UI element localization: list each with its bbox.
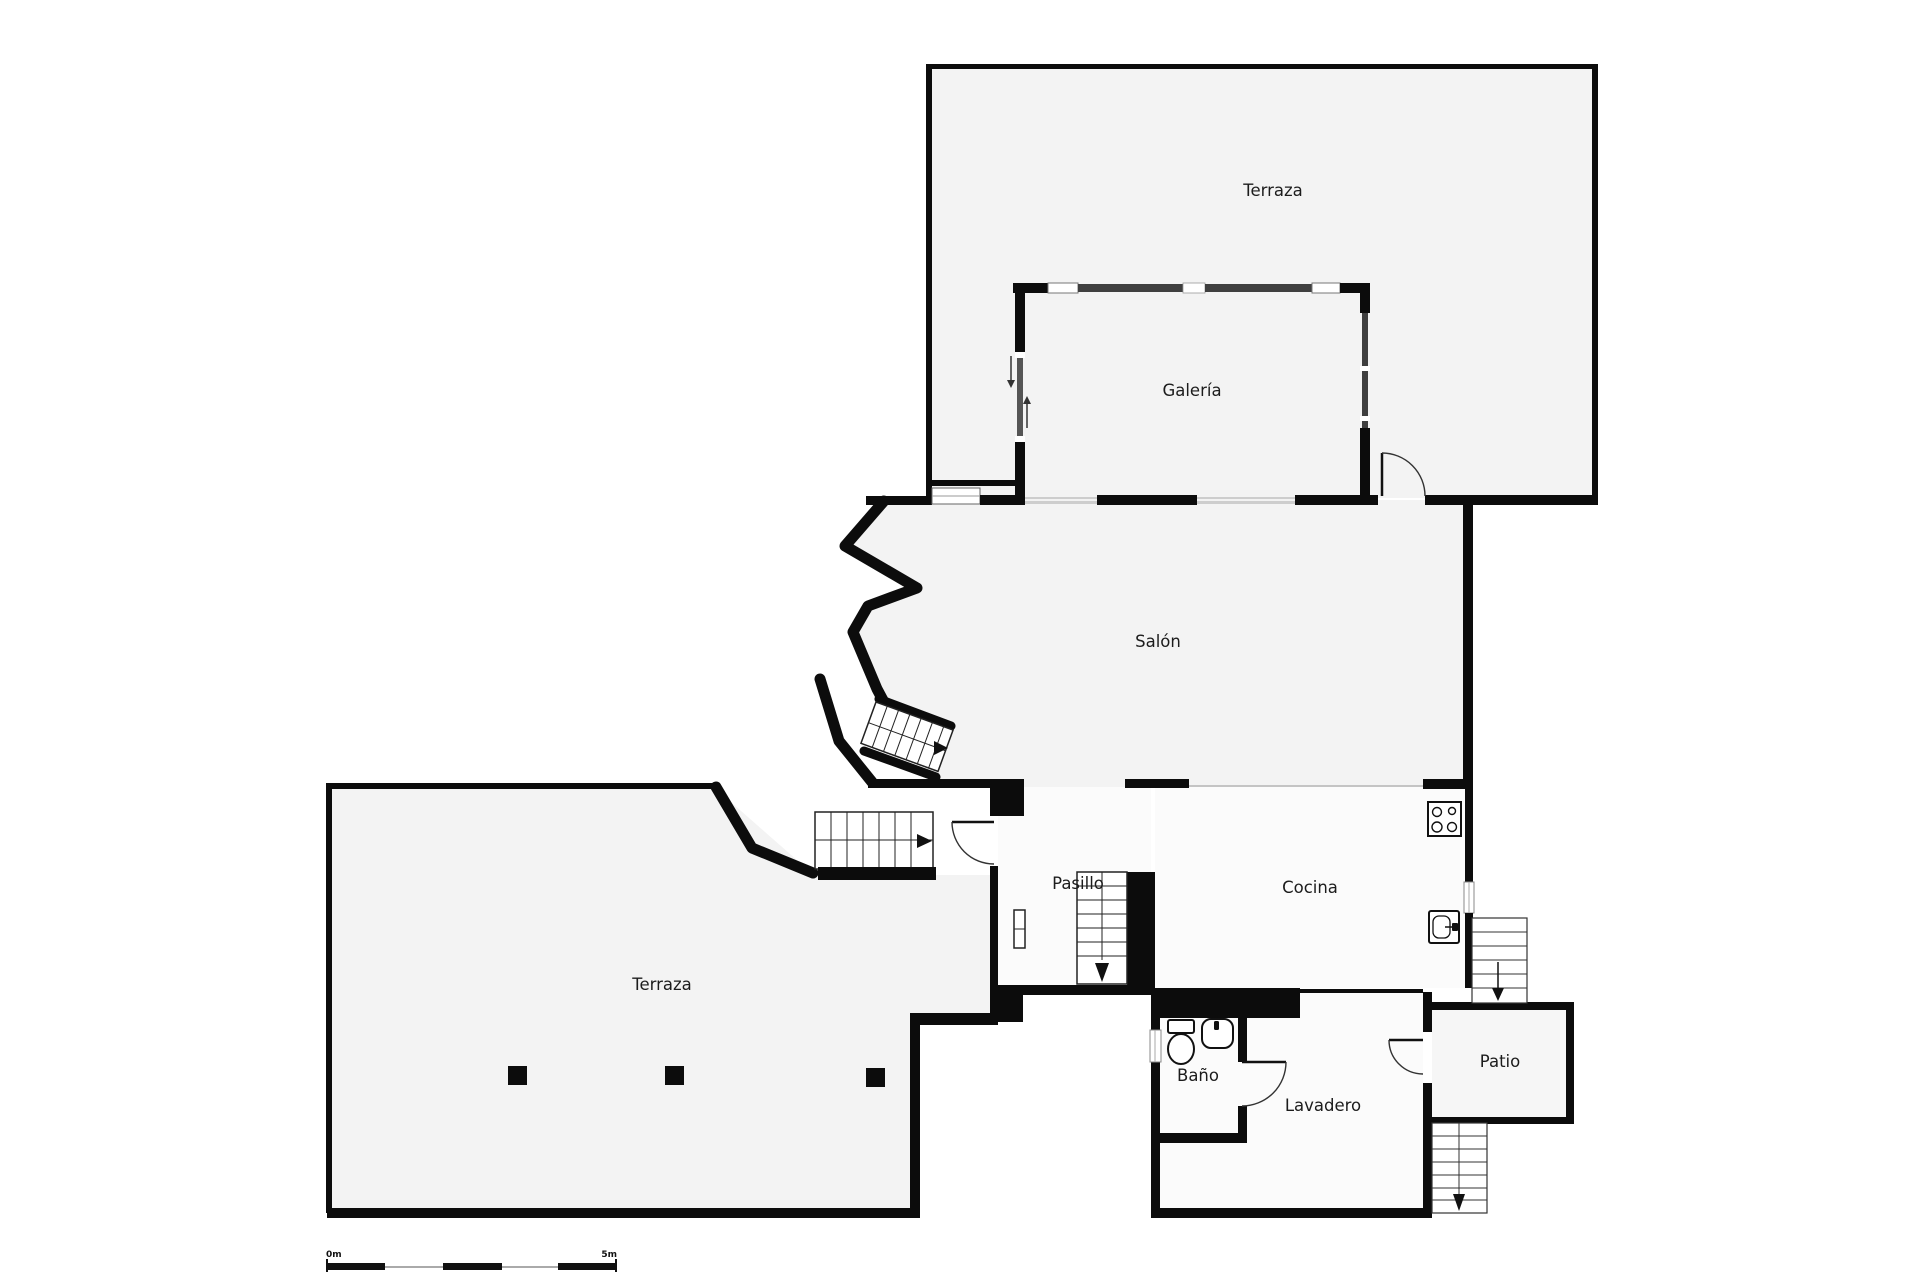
stairs-icon bbox=[815, 812, 933, 869]
radiator-icon bbox=[1014, 910, 1025, 948]
scale-bar: 0m 5m bbox=[326, 1250, 617, 1272]
window-icon bbox=[932, 488, 980, 504]
stairs-icon bbox=[1472, 918, 1527, 1003]
room-label-salon: Salón bbox=[1135, 632, 1181, 651]
bathroom-sink-icon bbox=[1202, 1019, 1233, 1048]
scale-end-label: 5m bbox=[601, 1250, 617, 1260]
stove-icon bbox=[1428, 802, 1461, 836]
room-label-patio: Patio bbox=[1480, 1052, 1520, 1071]
room-label-lavadero: Lavadero bbox=[1285, 1096, 1361, 1115]
room-label-terraza-bottom: Terraza bbox=[631, 975, 692, 994]
room-label-cocina: Cocina bbox=[1282, 878, 1338, 897]
stairs-icon bbox=[1432, 1123, 1487, 1213]
room-label-pasillo: Pasillo bbox=[1052, 874, 1104, 893]
room-label-bano: Baño bbox=[1177, 1066, 1219, 1085]
stairs-side-wall bbox=[818, 867, 936, 880]
room-label-galeria: Galería bbox=[1162, 381, 1221, 400]
floor-plan-drawing: 0m 5m Terraza Galería Salón Terraza Pasi… bbox=[0, 0, 1920, 1280]
scale-start-label: 0m bbox=[326, 1250, 342, 1260]
room-fills bbox=[332, 67, 1595, 1208]
kitchen-sink-icon bbox=[1429, 911, 1459, 943]
floor-plan: 0m 5m Terraza Galería Salón Terraza Pasi… bbox=[0, 0, 1920, 1280]
window-icon bbox=[1150, 1030, 1161, 1062]
room-label-terraza-top: Terraza bbox=[1242, 181, 1303, 200]
window-icon bbox=[1464, 882, 1474, 913]
window-icon bbox=[1197, 497, 1295, 504]
window-icon bbox=[1025, 497, 1097, 504]
toilet-icon bbox=[1168, 1020, 1194, 1064]
